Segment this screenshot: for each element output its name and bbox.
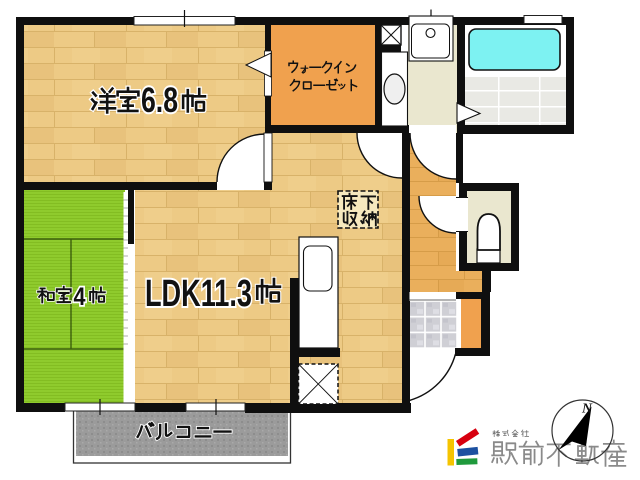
svg-text:N: N — [581, 402, 593, 417]
svg-text:6.8: 6.8 — [141, 81, 178, 120]
svg-text:4: 4 — [74, 283, 86, 311]
svg-text:LDK11.3: LDK11.3 — [145, 273, 252, 315]
